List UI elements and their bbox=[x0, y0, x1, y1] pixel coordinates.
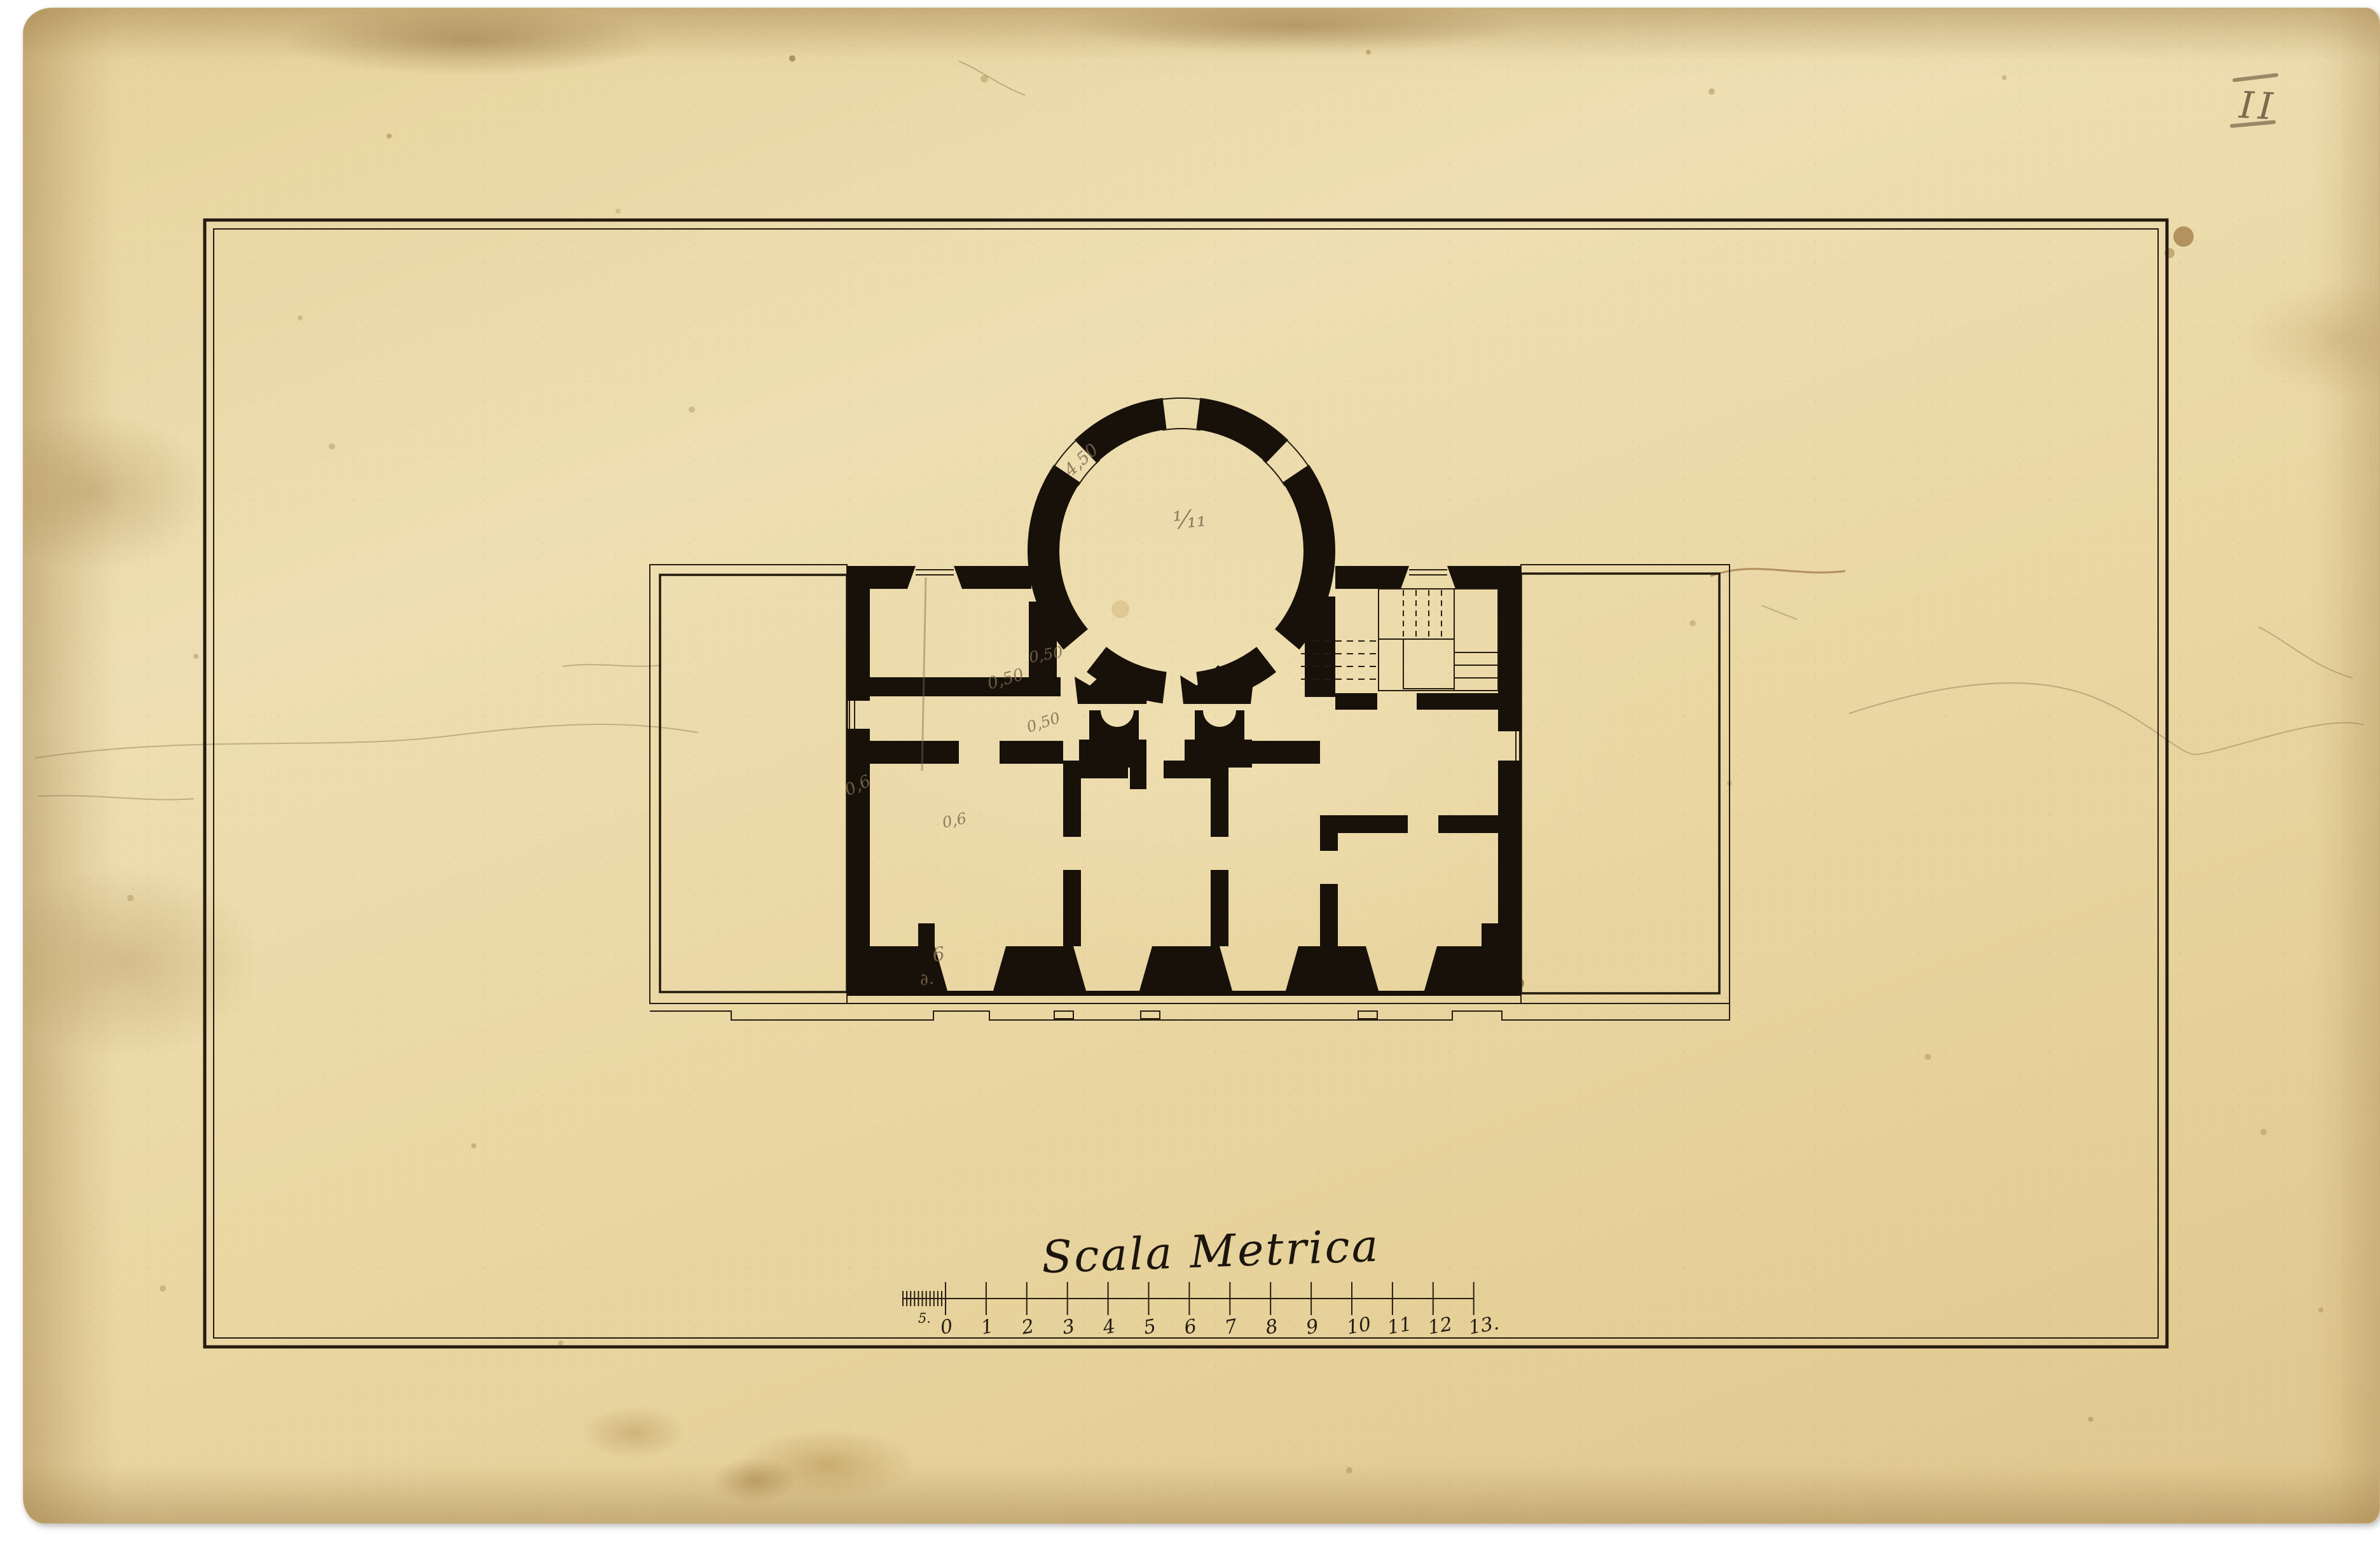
rotunda-wall-arc bbox=[1198, 414, 1277, 451]
pencil-annotations: ¹⁄₁₁4,500,500,500,500,60,66∂. bbox=[842, 440, 1207, 990]
plan-walls bbox=[847, 566, 1521, 996]
pencil-annotation: 0,50 bbox=[1024, 709, 1062, 736]
scale-tick-label: 4 bbox=[1101, 1315, 1117, 1339]
scale-tick-label: 5 bbox=[1142, 1315, 1158, 1339]
scanned-sheet-stage: ¹⁄₁₁4,500,500,500,500,60,66∂. Scala Metr… bbox=[0, 0, 2380, 1544]
rotunda-wall-arc bbox=[1198, 659, 1266, 687]
rotunda-window-line bbox=[1284, 438, 1311, 470]
pencil-annotation: 6 bbox=[931, 943, 946, 967]
scale-tick-label: 1 bbox=[979, 1315, 995, 1339]
scale-bar: Scala Metrica 5.012345678910111213. bbox=[903, 1220, 1501, 1339]
rotunda-wall-arc bbox=[1085, 414, 1164, 451]
scale-tick-label: 10 bbox=[1345, 1313, 1373, 1339]
pencil-annotation: ¹⁄₁₁ bbox=[1171, 504, 1207, 535]
scale-tick-label: 11 bbox=[1386, 1313, 1414, 1339]
rotunda-window-line bbox=[1162, 429, 1200, 430]
sheet-number-top-bar bbox=[2234, 75, 2276, 80]
side-wing-outlines bbox=[650, 565, 1730, 1003]
scale-tick-label: 7 bbox=[1223, 1315, 1240, 1339]
scale-tick-label: 13. bbox=[1467, 1312, 1501, 1339]
scale-tick-label: 2 bbox=[1019, 1315, 1036, 1339]
scale-tick-label: 9 bbox=[1304, 1315, 1320, 1339]
scale-tick-label: 8 bbox=[1264, 1315, 1280, 1339]
border-frame bbox=[205, 220, 2167, 1347]
rotunda-window-line bbox=[1158, 398, 1206, 400]
drawing-layer: ¹⁄₁₁4,500,500,500,500,60,66∂. Scala Metr… bbox=[0, 0, 2380, 1544]
scale-subdivision-label: 5. bbox=[918, 1311, 931, 1326]
scale-title: Scala Metrica bbox=[1041, 1220, 1381, 1284]
rotunda-window-line bbox=[1263, 460, 1285, 486]
scale-ticks: 5.012345678910111213. bbox=[903, 1282, 1501, 1339]
window-reveal-lines bbox=[850, 570, 1520, 761]
rotunda bbox=[1043, 398, 1319, 687]
scale-tick-label: 6 bbox=[1183, 1315, 1199, 1339]
scale-tick-label: 0 bbox=[939, 1315, 954, 1339]
rotunda-wall-arc bbox=[1096, 659, 1164, 687]
terrace-steps bbox=[650, 1003, 1730, 1020]
sheet-number: II bbox=[2232, 75, 2278, 128]
rotunda-wall-arc bbox=[1043, 474, 1076, 640]
scale-tick-label: 3 bbox=[1061, 1315, 1077, 1339]
rotunda-wall-arc bbox=[1287, 474, 1319, 640]
scale-tick-label: 12 bbox=[1426, 1313, 1454, 1339]
pencil-annotation: 0,6 bbox=[940, 810, 968, 832]
